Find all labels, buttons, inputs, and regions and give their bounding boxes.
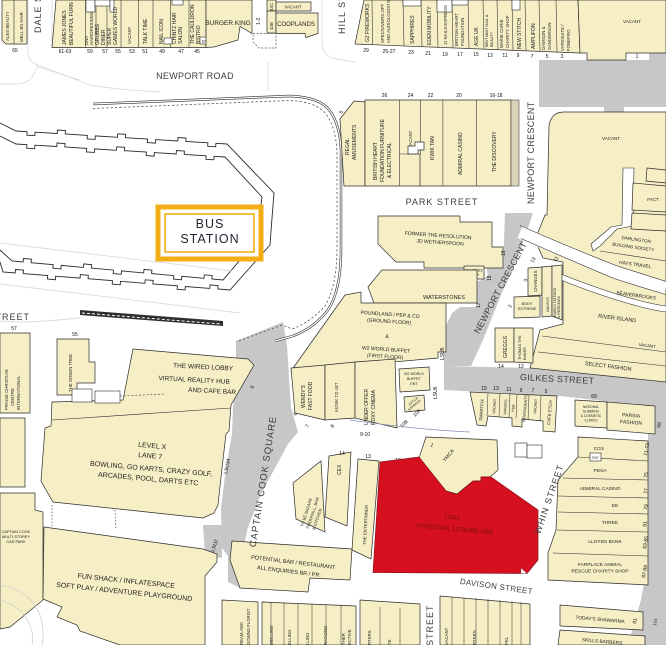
svg-text:GOWNS FLORIST: GOWNS FLORIST — [246, 608, 251, 645]
svg-text:3: 3 — [561, 54, 564, 60]
svg-text:EXTREME: EXTREME — [518, 307, 537, 311]
svg-text:57: 57 — [102, 49, 108, 55]
svg-text:LLOYDS BANK: LLOYDS BANK — [588, 539, 622, 545]
svg-text:19: 19 — [501, 250, 507, 256]
svg-text:15: 15 — [481, 386, 487, 392]
svg-text:21: 21 — [425, 51, 431, 57]
svg-text:17: 17 — [457, 52, 463, 58]
svg-text:ENT: ENT — [592, 456, 598, 460]
svg-text:REGAL: REGAL — [345, 138, 351, 155]
svg-text:W2 WORLD: W2 WORLD — [404, 372, 424, 376]
svg-text:FARPLACE ANIMAL: FARPLACE ANIMAL — [578, 562, 622, 568]
svg-text:PRAISE CHRISTIAN: PRAISE CHRISTIAN — [4, 369, 9, 410]
svg-text:ECTIVE: ECTIVE — [347, 629, 352, 645]
svg-text:CAPTAIN COOK: CAPTAIN COOK — [2, 530, 31, 534]
svg-text:HAIRDRESSING: HAIRDRESSING — [89, 11, 94, 45]
svg-text:WATERSTONES: WATERSTONES — [423, 295, 465, 301]
svg-text:THREE: THREE — [602, 520, 618, 526]
svg-text:LSU1: LSU1 — [444, 513, 461, 521]
svg-text:14: 14 — [498, 364, 504, 370]
svg-text:9-10: 9-10 — [360, 432, 370, 438]
svg-text:TE: TE — [387, 639, 392, 645]
svg-text:MARIE CURIE: MARIE CURIE — [499, 19, 504, 48]
svg-text:15: 15 — [473, 52, 479, 58]
svg-text:MELL BS HAIR: MELL BS HAIR — [19, 12, 24, 42]
svg-text:VACANT: VACANT — [284, 5, 301, 10]
svg-text:NAIL ICON: NAIL ICON — [159, 19, 165, 44]
svg-text:26: 26 — [382, 93, 388, 99]
svg-text:DAWSON &: DAWSON & — [541, 26, 546, 50]
svg-text:ROXY CINEMA: ROXY CINEMA — [371, 389, 377, 425]
svg-text:BUFFET: BUFFET — [407, 377, 422, 381]
svg-text:13: 13 — [365, 454, 371, 460]
svg-text:CEX: CEX — [337, 464, 343, 475]
svg-text:47: 47 — [178, 49, 184, 55]
svg-text:MINT MINT NAIL &: MINT MINT NAIL & — [485, 14, 489, 47]
svg-text:49: 49 — [159, 49, 165, 55]
svg-text:ENT: ENT — [410, 382, 418, 386]
svg-text:STATION: STATION — [180, 232, 239, 246]
svg-text:FONEPRO: FONEPRO — [566, 29, 571, 51]
svg-text:9: 9 — [517, 53, 520, 59]
svg-text:LSU6: LSU6 — [433, 386, 439, 399]
svg-text:VACANT: VACANT — [408, 130, 413, 148]
svg-text:24: 24 — [408, 93, 414, 99]
svg-text:BAKER: BAKER — [523, 347, 527, 360]
svg-text:KIOSK TO LET: KIOSK TO LET — [334, 382, 339, 412]
svg-text:11: 11 — [506, 387, 511, 393]
svg-text:59: 59 — [87, 49, 93, 55]
svg-text:NEWPORT ROAD: NEWPORT ROAD — [156, 71, 234, 81]
svg-text:22: 22 — [428, 93, 434, 99]
svg-text:TALK TIME: TALK TIME — [143, 18, 149, 44]
svg-text:& ELECTRICAL: & ELECTRICAL — [387, 142, 393, 178]
svg-text:JJ NAILS EXPRESS: JJ NAILS EXPRESS — [443, 5, 448, 45]
svg-text:45: 45 — [194, 49, 200, 55]
svg-text:17: 17 — [476, 302, 482, 308]
svg-text:14: 14 — [339, 451, 345, 457]
svg-text:43C: 43C — [269, 3, 274, 11]
svg-text:BUS: BUS — [196, 217, 225, 231]
svg-text:SLIMMING: SLIMMING — [583, 410, 600, 414]
svg-text:18: 18 — [487, 275, 493, 281]
svg-text:ALES BEAUTY: ALES BEAUTY — [5, 11, 10, 41]
svg-text:THE GREEN TREE: THE GREEN TREE — [68, 354, 73, 392]
svg-text:VACANT: VACANT — [623, 19, 641, 24]
svg-text:19: 19 — [442, 52, 448, 58]
svg-text:11: 11 — [502, 53, 507, 59]
svg-text:GAMES WORLD: GAMES WORLD — [113, 7, 119, 45]
svg-text:HILL ST: HILL ST — [337, 0, 347, 34]
svg-text:NEW STITCH: NEW STITCH — [517, 18, 523, 49]
svg-text:WILSON STREET: WILSON STREET — [0, 312, 30, 322]
svg-text:THER: THER — [341, 633, 346, 645]
svg-text:AND AUDIOLOGISTS: AND AUDIOLOGISTS — [386, 0, 391, 43]
svg-text:12: 12 — [518, 364, 524, 370]
svg-text:61-63: 61-63 — [59, 49, 72, 55]
svg-text:FACT: FACT — [647, 197, 659, 202]
svg-text:COOPLANDS: COOPLANDS — [277, 22, 315, 28]
svg-text:29: 29 — [363, 48, 369, 54]
svg-text:53: 53 — [129, 49, 135, 55]
svg-text:& COSMETIC: & COSMETIC — [581, 414, 602, 418]
svg-text:G2 FIREWORKS: G2 FIREWORKS — [365, 3, 371, 42]
svg-text:SAPPHIRES: SAPPHIRES — [410, 15, 416, 44]
svg-text:CHANGES: CHANGES — [533, 270, 538, 292]
svg-text:CHARITY SHOP: CHARITY SHOP — [505, 15, 510, 48]
svg-text:CLINICS: CLINICS — [584, 419, 598, 423]
svg-text:FAST FOOD: FAST FOOD — [308, 381, 314, 410]
svg-text:69: 69 — [591, 394, 597, 400]
svg-text:MULTI-STOREY: MULTI-STOREY — [2, 535, 30, 539]
svg-text:NEWPORT CRESCENT: NEWPORT CRESCENT — [526, 101, 536, 204]
svg-text:LLING: LLING — [305, 632, 310, 645]
svg-text:VACANT: VACANT — [127, 26, 132, 44]
svg-text:5: 5 — [545, 389, 548, 395]
svg-text:REAM AND: REAM AND — [239, 622, 244, 645]
svg-text:ADMIRAL CASINO: ADMIRAL CASINO — [580, 486, 621, 492]
svg-text:BRITISH HEART: BRITISH HEART — [454, 13, 459, 46]
svg-text:RTERS: RTERS — [367, 630, 372, 645]
svg-text:SPECSAVERS OPT: SPECSAVERS OPT — [380, 3, 385, 43]
svg-text:BURGER KING: BURGER KING — [205, 20, 251, 27]
svg-text:VACANT: VACANT — [444, 627, 449, 645]
svg-text:JAMES JONES: JAMES JONES — [62, 10, 68, 45]
svg-text:& PIERCINGS: & PIERCINGS — [557, 295, 561, 318]
svg-text:7: 7 — [532, 388, 535, 394]
svg-text:SANDERSON: SANDERSON — [547, 22, 552, 50]
svg-text:BEAUTY: BEAUTY — [490, 31, 494, 47]
svg-text:UNDER OFFER: UNDER OFFER — [364, 389, 370, 426]
svg-text:13: 13 — [493, 386, 499, 392]
svg-text:FOUNDATION: FOUNDATION — [460, 18, 465, 46]
svg-text:THOMAS THE: THOMAS THE — [518, 335, 522, 360]
svg-text:AMUSEMENTS: AMUSEMENTS — [352, 124, 358, 160]
svg-text:PDSA: PDSA — [593, 468, 607, 474]
svg-text:55: 55 — [115, 49, 121, 55]
svg-text:13: 13 — [487, 53, 493, 59]
svg-text:CGX: CGX — [594, 446, 605, 452]
svg-text:55: 55 — [72, 332, 78, 338]
svg-text:23: 23 — [408, 50, 414, 56]
svg-text:KWIK TAN: KWIK TAN — [430, 136, 436, 160]
svg-text:VAPESUITE /: VAPESUITE / — [560, 24, 565, 51]
svg-text:ADMIRAL CASINO: ADMIRAL CASINO — [458, 132, 464, 175]
svg-text:LSU5: LSU5 — [440, 347, 446, 360]
svg-text:25-27: 25-27 — [383, 49, 396, 55]
svg-text:57: 57 — [11, 326, 17, 332]
svg-text:VACANT: VACANT — [602, 136, 620, 141]
svg-text:AGE UK: AGE UK — [474, 26, 480, 46]
svg-text:9: 9 — [520, 388, 523, 394]
svg-text:43B: 43B — [269, 22, 274, 30]
svg-text:BRITISH HEART: BRITISH HEART — [373, 142, 379, 180]
svg-text:GREGGS: GREGGS — [503, 335, 509, 358]
svg-text:WELLING: WELLING — [269, 625, 274, 645]
svg-text:DALE STREET: DALE STREET — [33, 0, 43, 33]
svg-text:EDEN MOBILITY: EDEN MOBILITY — [427, 6, 433, 45]
svg-text:1: 1 — [636, 54, 639, 60]
svg-text:WENDY'S: WENDY'S — [301, 384, 307, 408]
svg-text:SALVIN'S: SALVIN'S — [546, 297, 550, 312]
svg-text:RATIONS: RATIONS — [323, 626, 328, 645]
svg-text:RTERS: RTERS — [472, 630, 477, 645]
svg-text:65: 65 — [12, 48, 18, 54]
svg-text:RESCUE CHARITY SHOP: RESCUE CHARITY SHOP — [571, 569, 628, 575]
svg-text:7: 7 — [531, 54, 534, 60]
svg-text:INTERNATIONAL: INTERNATIONAL — [16, 375, 21, 410]
svg-text:BEAUTIFUL FURN: BEAUTIFUL FURN — [69, 2, 75, 45]
svg-text:20: 20 — [456, 93, 462, 99]
svg-text:CENTRE: CENTRE — [10, 388, 15, 406]
svg-text:SALON: SALON — [178, 27, 184, 44]
svg-text:5: 5 — [546, 54, 549, 60]
svg-text:51: 51 — [142, 49, 148, 55]
svg-text:BODY: BODY — [522, 302, 533, 306]
svg-text:THE DISCOVERY: THE DISCOVERY — [492, 131, 498, 172]
svg-text:NATIONAL: NATIONAL — [583, 405, 599, 409]
svg-text:STREET: STREET — [425, 604, 435, 645]
svg-text:CAR PARK: CAR PARK — [6, 540, 26, 544]
svg-text:1-2: 1-2 — [256, 18, 262, 25]
svg-text:FOUNDATION FURNITURE: FOUNDATION FURNITURE — [380, 118, 386, 182]
svg-text:PEL: PEL — [504, 636, 509, 645]
svg-text:EE: EE — [612, 503, 618, 509]
svg-text:ELLING: ELLING — [287, 629, 292, 645]
svg-text:AMPLIFON: AMPLIFON — [531, 23, 537, 49]
svg-text:PARK STREET: PARK STREET — [406, 197, 479, 207]
svg-text:16-18: 16-18 — [490, 93, 503, 99]
svg-text:HUB: HUB — [511, 404, 516, 413]
